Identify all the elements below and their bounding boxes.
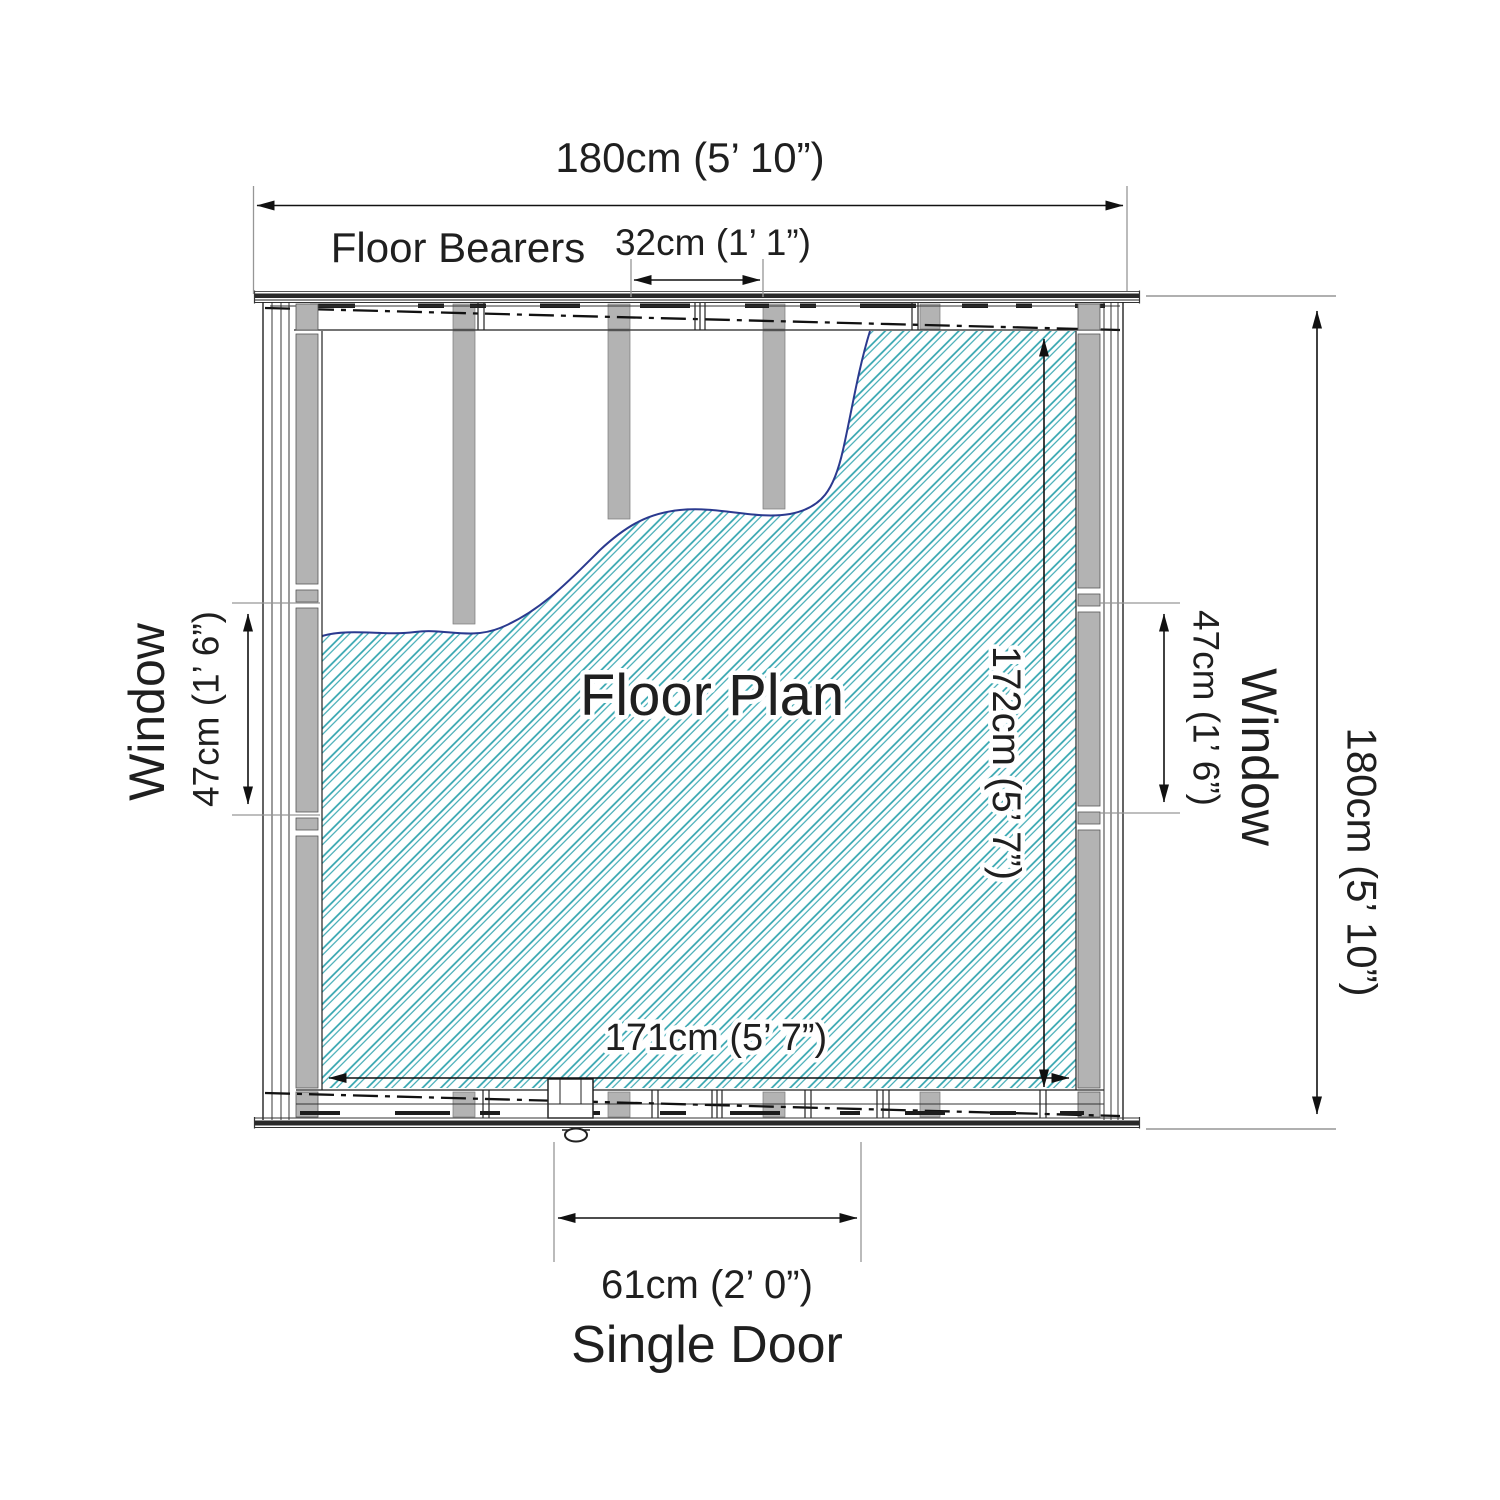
dim-bearer-spacing: 32cm (1’ 1”) — [615, 222, 811, 297]
floor-plan-title: Floor Plan — [580, 663, 844, 728]
wall-top — [254, 291, 1140, 331]
cladding-marks-bottom — [300, 1111, 1084, 1115]
window-left-label: Window — [119, 622, 175, 801]
bearer-spacing-label: 32cm (1’ 1”) — [615, 222, 811, 263]
window-right-frame — [1078, 612, 1100, 806]
bearer-stub — [453, 1092, 475, 1117]
bearer — [763, 331, 785, 509]
door-size-label: 61cm (2’ 0”) — [601, 1263, 813, 1307]
door-handle — [565, 1129, 587, 1142]
window-left-size-label: 47cm (1’ 6”) — [186, 611, 227, 807]
window-right-size-label: 47cm (1’ 6”) — [1186, 610, 1227, 806]
bearer — [453, 331, 475, 624]
overall-depth-label: 180cm (5’ 10”) — [1339, 727, 1386, 996]
wall-right-frame — [1078, 304, 1100, 1117]
dim-window-left: 47cm (1’ 6”) Window — [119, 603, 320, 815]
wall-left — [263, 302, 322, 1120]
internal-depth-label: 172cm (5’ 7”) — [984, 646, 1028, 880]
roof-edge-bottom — [254, 1117, 1140, 1129]
bearer-stub — [608, 1092, 630, 1117]
dash-dot-line-top — [265, 308, 1120, 330]
window-left-frame — [296, 608, 318, 812]
wall-right — [1076, 302, 1123, 1120]
overall-width-label: 180cm (5’ 10”) — [555, 134, 824, 181]
door-leaf — [548, 1079, 593, 1118]
wall-left-frame — [296, 304, 318, 1117]
floor-plan-diagram: 180cm (5’ 10”) Floor Bearers 32cm (1’ 1”… — [0, 0, 1500, 1500]
dim-window-right: 47cm (1’ 6”) Window — [1100, 603, 1287, 847]
bearer — [608, 331, 630, 519]
roof-edge-top — [254, 291, 1140, 304]
wall-bottom — [254, 1079, 1140, 1142]
internal-width-label: 171cm (5’ 7”) — [605, 1017, 827, 1059]
floor-bearers-label: Floor Bearers — [331, 224, 585, 271]
single-door — [548, 1079, 593, 1142]
window-right-label: Window — [1231, 668, 1287, 847]
dim-door: 61cm (2’ 0”) Single Door — [554, 1142, 861, 1374]
single-door-label: Single Door — [571, 1316, 843, 1374]
